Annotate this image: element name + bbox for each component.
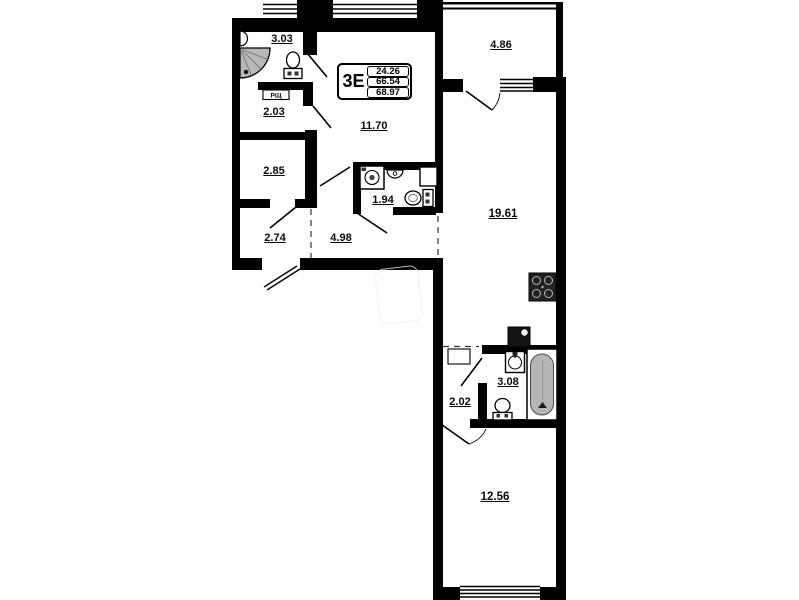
wall-segment — [305, 130, 317, 208]
door-swing — [307, 53, 327, 77]
door-swing — [357, 213, 387, 233]
bathtub-icon — [527, 349, 557, 420]
sink-icon — [240, 31, 248, 46]
wall-segment — [556, 77, 566, 600]
wall-segment — [540, 587, 566, 600]
wall-segment — [303, 82, 313, 106]
room-label-balcony: 4.86 — [490, 39, 511, 51]
window — [263, 0, 297, 18]
room-label-bathroom-bottom: 3.08 — [497, 376, 518, 388]
wall-segment — [232, 18, 240, 270]
stove-icon — [529, 273, 556, 301]
vent-shaft — [420, 167, 437, 186]
room-label-entry-hall: 2.74 — [264, 232, 285, 244]
wall-segment — [232, 199, 270, 208]
unit-type-label: 3Е — [340, 66, 367, 97]
toilet-icon — [284, 52, 302, 79]
door-swing — [320, 167, 350, 186]
wall-segment — [393, 207, 436, 215]
room-label-wc: 1.94 — [372, 194, 393, 206]
scan-artifact — [374, 265, 424, 326]
wall-segment — [295, 199, 317, 208]
wall-segment — [232, 18, 443, 32]
room-label-hall-bottom: 2.02 — [449, 396, 470, 408]
wall-segment — [443, 8, 563, 10]
window — [500, 77, 533, 92]
window — [460, 584, 540, 598]
water-heater-icon — [508, 327, 530, 347]
room-label-bathroom-top: 3.03 — [271, 33, 292, 45]
toilet-icon — [493, 399, 512, 421]
wall-segment — [232, 258, 262, 270]
room-label-wardrobe: 2.85 — [263, 165, 284, 177]
wall-segment — [533, 77, 566, 92]
wall-segment — [303, 13, 317, 55]
wall-segment — [443, 79, 463, 92]
balcony-door-swing — [466, 91, 500, 110]
doors — [264, 53, 500, 444]
cabinet — [448, 349, 470, 364]
living-area-value: 24.26 — [367, 66, 409, 77]
wall-segment — [433, 262, 443, 600]
floor-plan: РЩ — [0, 0, 799, 600]
sink-icon — [387, 170, 403, 178]
toilet-icon — [405, 190, 433, 207]
door-swing — [270, 207, 296, 228]
wall-segment — [443, 2, 563, 5]
room-label-bedroom-top: 11.70 — [361, 120, 388, 132]
electrical-panel-label: РЩ — [271, 92, 282, 99]
room-label-kitchen-living: 19.61 — [489, 208, 518, 220]
washing-machine-icon — [360, 166, 384, 189]
washbasin-icon — [506, 352, 525, 373]
room-label-storage: 2.03 — [263, 106, 284, 118]
room-label-corridor: 4.98 — [330, 232, 351, 244]
entrance-door — [264, 266, 300, 290]
door-swing — [313, 106, 331, 128]
wall-segment — [300, 258, 443, 270]
areas-table: 24.26 66.54 68.97 — [367, 66, 409, 97]
electrical-panel: РЩ — [263, 90, 289, 100]
apartment-area-value: 66.54 — [367, 77, 409, 88]
room-label-bedroom-bottom: 12.56 — [481, 491, 510, 503]
total-area-value: 68.97 — [367, 87, 409, 98]
shower-icon — [240, 48, 270, 78]
wall-segment — [435, 587, 460, 600]
wall-segment — [556, 2, 563, 77]
window — [333, 0, 417, 18]
title-block: 3Е 24.26 66.54 68.97 — [337, 63, 412, 100]
